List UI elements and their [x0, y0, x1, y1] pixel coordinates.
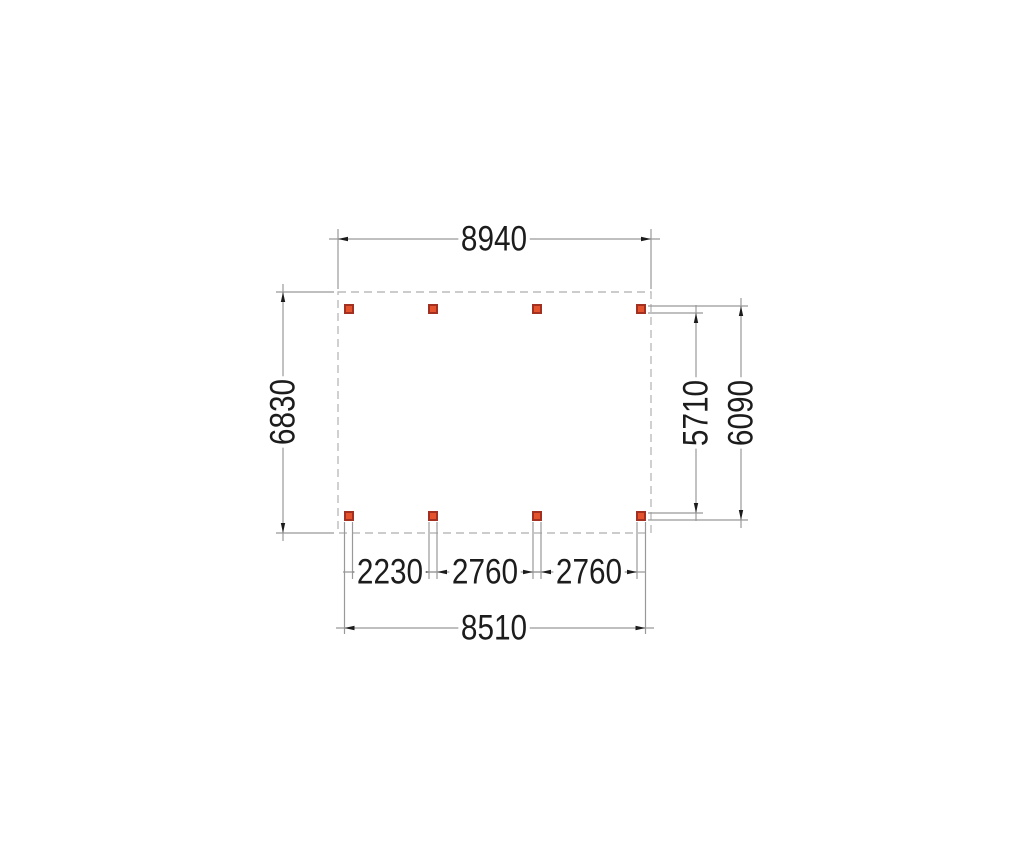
post-marker-top-2	[428, 304, 438, 314]
dim-left-height-label: 6830	[266, 376, 299, 447]
post-marker-bottom-1	[344, 511, 354, 521]
dim-bottom-spacing-1-label: 2230	[354, 555, 425, 588]
post-marker-top-1	[344, 304, 354, 314]
dim-right-inner-height-label: 5710	[679, 377, 712, 448]
post-marker-bottom-4	[636, 511, 646, 521]
post-marker-top-3	[532, 304, 542, 314]
dim-bottom-width-label: 8510	[458, 611, 529, 644]
dim-bottom-spacing-3-label: 2760	[553, 555, 624, 588]
post-marker-bottom-2	[428, 511, 438, 521]
plan-canvas: 8940 6830 5710 6090 2230 2760 2760 8510	[0, 0, 1024, 854]
dim-right-outer-height-label: 6090	[724, 377, 757, 448]
plan-drawing	[0, 0, 1024, 854]
dim-top-width-label: 8940	[458, 222, 529, 255]
post-marker-bottom-3	[532, 511, 542, 521]
post-marker-top-4	[636, 304, 646, 314]
dim-bottom-spacing-2-label: 2760	[449, 555, 520, 588]
structure-outline-dashed	[338, 292, 651, 533]
